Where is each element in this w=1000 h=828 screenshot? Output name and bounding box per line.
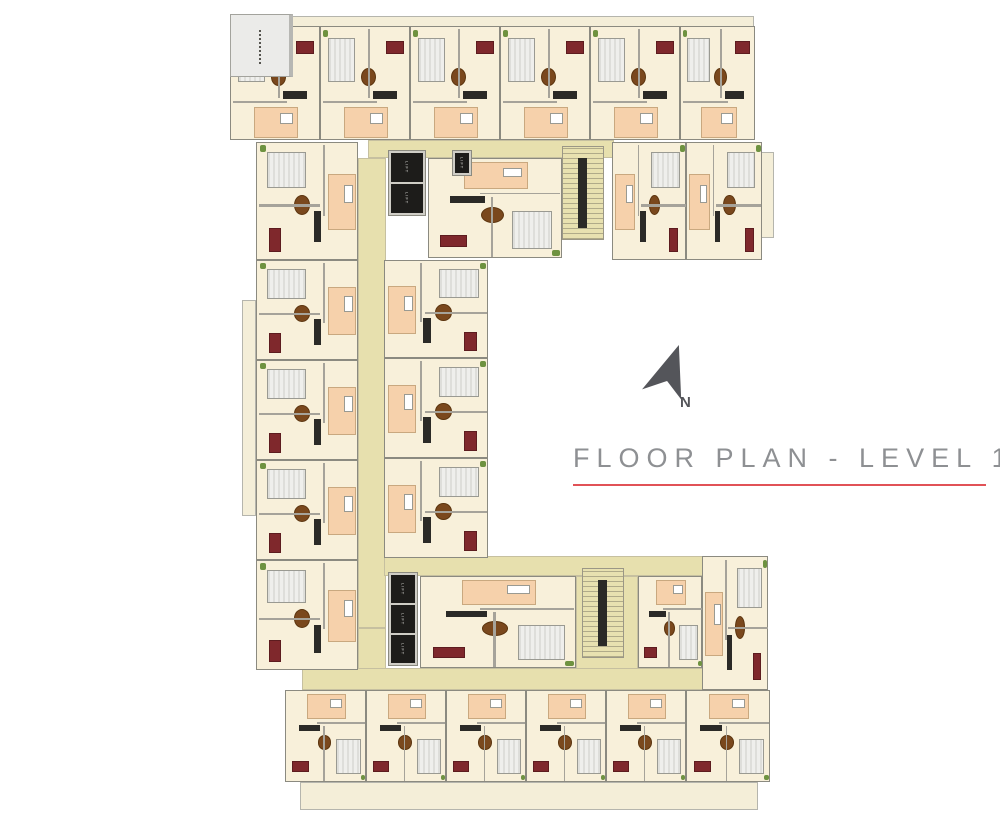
plant-icon <box>683 30 688 37</box>
wall-line <box>425 312 487 314</box>
wall-line <box>480 193 560 195</box>
plant-icon <box>552 250 560 256</box>
apartment-unit <box>446 690 526 782</box>
bed-icon <box>739 739 764 774</box>
plant-icon <box>260 563 266 570</box>
stair-rail <box>578 158 587 228</box>
wall-line <box>368 29 370 97</box>
plant-icon <box>480 361 486 367</box>
plant-icon <box>361 775 366 781</box>
apartment-unit <box>384 358 488 458</box>
bathroom-zone <box>328 487 356 535</box>
sofa-icon <box>745 228 754 252</box>
tv-unit-icon <box>620 725 641 731</box>
apartment-unit <box>384 458 488 558</box>
page-title: FLOOR PLAN - LEVEL 1 <box>573 443 986 474</box>
wall-line <box>425 511 487 513</box>
wall-line <box>420 461 422 521</box>
bed-icon <box>518 625 565 660</box>
sofa-icon <box>476 41 494 55</box>
bed-icon <box>267 369 306 399</box>
floor-plan-drawing: LIFTLIFTLIFTLIFTLIFTLIFT <box>0 0 1000 828</box>
plant-icon <box>763 560 767 568</box>
tv-unit-icon <box>283 91 306 99</box>
bed-icon <box>439 467 479 497</box>
bed-icon <box>418 38 445 81</box>
bathroom-zone <box>328 387 356 435</box>
bathroom-zone <box>434 107 477 138</box>
apartment-unit <box>366 690 446 782</box>
apartment-unit <box>500 26 590 140</box>
wall-line <box>493 612 496 667</box>
sofa-icon <box>735 41 750 55</box>
title-underline <box>573 484 986 486</box>
sink-icon <box>404 494 413 510</box>
apartment-unit <box>680 26 755 140</box>
apartment-unit <box>410 26 500 140</box>
bed-icon <box>267 570 306 603</box>
bathroom-zone <box>614 107 657 138</box>
sink-icon <box>344 185 353 203</box>
plant-icon <box>260 463 266 469</box>
wall-line <box>638 145 640 216</box>
bathroom-zone <box>709 694 749 719</box>
apartment-unit <box>420 576 576 668</box>
apartment-unit <box>285 690 366 782</box>
plant-icon <box>260 363 266 369</box>
plant-icon <box>601 775 606 781</box>
bed-icon <box>687 38 710 81</box>
wall-line <box>420 263 422 322</box>
wall-line <box>726 726 728 781</box>
bathroom-zone <box>548 694 586 719</box>
tv-unit-icon <box>423 417 430 443</box>
sink-icon <box>721 113 733 124</box>
bathroom-zone <box>656 580 687 605</box>
bathroom-zone <box>701 107 737 138</box>
sofa-icon <box>296 41 314 55</box>
bathroom-zone <box>524 107 567 138</box>
wall-line <box>259 413 320 415</box>
tv-unit-icon <box>314 419 321 445</box>
wall-line <box>728 627 768 630</box>
sink-icon <box>650 699 662 708</box>
sofa-icon <box>464 431 476 451</box>
sofa-icon <box>453 761 469 772</box>
sink-icon <box>330 699 342 708</box>
plant-icon <box>260 145 266 152</box>
sink-icon <box>700 185 707 203</box>
wall-line <box>323 145 325 216</box>
apartment-unit <box>526 690 606 782</box>
bed-icon <box>497 739 521 774</box>
sink-icon <box>344 600 353 617</box>
stair-rail <box>598 580 607 647</box>
lift-shaft: LIFT <box>391 184 423 213</box>
sofa-icon <box>269 640 281 662</box>
sofa-icon <box>753 653 761 680</box>
sofa-icon <box>269 533 281 553</box>
bed-icon <box>267 269 306 299</box>
apartment-unit <box>256 142 358 260</box>
wall-line <box>420 361 422 421</box>
apartment-unit <box>256 560 358 670</box>
terrace-strip <box>760 152 774 238</box>
wall-line <box>638 29 640 97</box>
plant-icon <box>756 145 761 152</box>
bathroom-zone <box>388 286 416 333</box>
wall-line <box>668 612 670 667</box>
tv-unit-icon <box>715 211 720 242</box>
bathroom-zone <box>328 590 356 643</box>
sofa-icon <box>386 41 404 55</box>
plant-icon <box>323 30 328 37</box>
tv-unit-icon <box>446 611 487 617</box>
sink-icon <box>640 113 654 124</box>
tv-unit-icon <box>299 725 320 731</box>
wall-line <box>323 463 325 523</box>
plant-icon <box>681 775 686 781</box>
bed-icon <box>577 739 601 774</box>
lift-shaft: LIFT <box>391 605 415 633</box>
wall-line <box>425 411 487 413</box>
apartment-unit <box>606 690 686 782</box>
wall-line <box>503 101 557 103</box>
lift-block: LIFTLIFT <box>388 150 426 216</box>
sink-icon <box>370 113 384 124</box>
apartment-unit <box>590 26 680 140</box>
sofa-icon <box>269 433 281 453</box>
wall-line <box>641 204 685 206</box>
wall-line <box>259 313 320 315</box>
wall-line <box>323 263 325 323</box>
tv-unit-icon <box>314 625 321 654</box>
wall-line <box>413 101 467 103</box>
sink-icon <box>404 394 413 410</box>
plant-icon <box>764 775 769 781</box>
sofa-icon <box>440 235 467 247</box>
tv-unit-icon <box>463 91 486 99</box>
corridor <box>358 628 386 670</box>
wall-line <box>725 560 727 640</box>
tv-unit-icon <box>314 319 321 345</box>
sofa-icon <box>694 761 711 772</box>
apartment-unit <box>256 360 358 460</box>
wall-line <box>719 722 769 724</box>
corridor <box>384 556 706 576</box>
sink-icon <box>550 113 564 124</box>
wall-line <box>317 722 366 724</box>
roof-annotation <box>259 28 261 64</box>
sink-icon <box>507 585 529 594</box>
bathroom-zone <box>689 174 710 231</box>
lift-shaft: LIFT <box>391 635 415 663</box>
sofa-icon <box>464 332 476 352</box>
north-compass: N <box>638 342 708 420</box>
bathroom-zone <box>464 162 528 189</box>
plant-icon <box>503 30 508 37</box>
bed-icon <box>679 625 698 660</box>
north-label: N <box>680 394 691 411</box>
tv-unit-icon <box>700 725 722 731</box>
lift-block: LIFTLIFTLIFT <box>388 572 418 666</box>
tv-unit-icon <box>649 611 666 617</box>
wall-line <box>713 145 715 216</box>
bathroom-zone <box>328 174 356 231</box>
bed-icon <box>417 739 441 774</box>
wall-line <box>683 101 728 103</box>
sink-icon <box>344 496 353 512</box>
bed-icon <box>657 739 681 774</box>
sofa-icon <box>613 761 629 772</box>
corridor <box>302 668 710 690</box>
wall-line <box>557 722 605 724</box>
bathroom-zone <box>615 174 635 231</box>
bed-icon <box>439 367 479 397</box>
bathroom-zone <box>628 694 666 719</box>
wall-line <box>404 726 406 781</box>
sofa-icon <box>269 228 281 252</box>
sofa-icon <box>433 647 464 658</box>
sink-icon <box>344 296 353 312</box>
tv-unit-icon <box>725 91 745 99</box>
tv-unit-icon <box>423 517 430 543</box>
bed-icon <box>651 152 679 187</box>
apartment-unit <box>384 260 488 358</box>
sink-icon <box>714 604 720 625</box>
lift-shaft: LIFT <box>391 575 415 603</box>
apartment-unit <box>686 142 762 260</box>
bathroom-zone <box>328 287 356 335</box>
sink-icon <box>410 699 422 708</box>
bed-icon <box>512 211 552 249</box>
bed-icon <box>508 38 535 81</box>
wall-line <box>720 29 722 97</box>
plant-icon <box>680 145 684 152</box>
wall-line <box>491 197 494 257</box>
apartment-unit <box>428 158 562 258</box>
apartment-unit <box>320 26 410 140</box>
bed-icon <box>267 152 306 187</box>
lift-block: LIFT <box>452 150 472 176</box>
bathroom-zone <box>307 694 346 719</box>
stairwell <box>582 568 624 658</box>
sofa-icon <box>269 333 281 353</box>
sink-icon <box>732 699 745 708</box>
wall-line <box>593 101 647 103</box>
sofa-icon <box>373 761 389 772</box>
bed-icon <box>727 152 756 187</box>
tv-unit-icon <box>450 196 485 203</box>
bathroom-zone <box>468 694 506 719</box>
wall-line <box>484 726 486 781</box>
apartment-unit <box>686 690 770 782</box>
bathroom-zone <box>344 107 387 138</box>
apartment-unit <box>638 576 702 668</box>
sink-icon <box>673 585 683 594</box>
tv-unit-icon <box>373 91 396 99</box>
wall-line <box>564 726 566 781</box>
bed-icon <box>439 269 479 298</box>
bathroom-zone <box>254 107 297 138</box>
bathroom-zone <box>388 694 426 719</box>
sofa-icon <box>669 228 678 252</box>
wall-line <box>480 608 574 610</box>
apartment-unit <box>702 556 768 690</box>
wall-line <box>637 722 685 724</box>
wall-line <box>477 722 525 724</box>
bathroom-zone <box>388 485 416 533</box>
title-block: FLOOR PLAN - LEVEL 1 <box>573 443 986 486</box>
wall-line <box>259 204 320 206</box>
north-arrow-icon <box>638 342 698 402</box>
tv-unit-icon <box>460 725 481 731</box>
sink-icon <box>344 396 353 412</box>
tv-unit-icon <box>314 519 321 545</box>
plant-icon <box>260 263 266 269</box>
wall-line <box>548 29 550 97</box>
tv-unit-icon <box>553 91 576 99</box>
wall-line <box>716 204 762 206</box>
tv-unit-icon <box>643 91 666 99</box>
wall-line <box>458 29 460 97</box>
sofa-icon <box>656 41 674 55</box>
plant-icon <box>441 775 446 781</box>
bed-icon <box>737 568 762 608</box>
plant-icon <box>480 263 486 269</box>
sofa-icon <box>566 41 584 55</box>
bed-icon <box>336 739 360 774</box>
plant-icon <box>413 30 418 37</box>
sofa-icon <box>292 761 308 772</box>
sink-icon <box>626 185 633 203</box>
tv-unit-icon <box>380 725 401 731</box>
bed-icon <box>267 469 306 499</box>
bathroom-zone <box>462 580 537 605</box>
wall-line <box>323 363 325 423</box>
sofa-icon <box>644 647 657 658</box>
corridor <box>358 158 386 628</box>
bed-icon <box>598 38 625 81</box>
plant-icon <box>521 775 526 781</box>
sink-icon <box>280 113 294 124</box>
wall-line <box>233 101 287 103</box>
sofa-icon <box>533 761 549 772</box>
sofa-icon <box>464 531 476 551</box>
roof-area <box>230 14 293 77</box>
wall-line <box>663 608 701 610</box>
wall-line <box>323 563 325 629</box>
sink-icon <box>490 699 502 708</box>
apartment-unit <box>612 142 686 260</box>
apartment-unit <box>256 260 358 360</box>
wall-line <box>323 726 325 781</box>
sink-icon <box>460 113 474 124</box>
wall-line <box>644 726 646 781</box>
bathroom-zone <box>705 592 723 656</box>
tv-unit-icon <box>540 725 561 731</box>
tv-unit-icon <box>727 635 732 670</box>
wall-line <box>397 722 445 724</box>
bed-icon <box>328 38 355 81</box>
plant-icon <box>593 30 598 37</box>
wall-line <box>259 618 320 620</box>
stairwell <box>562 146 604 240</box>
sink-icon <box>570 699 582 708</box>
plant-icon <box>565 661 574 667</box>
tv-unit-icon <box>423 318 430 343</box>
sink-icon <box>404 296 413 312</box>
wall-line <box>323 101 377 103</box>
sink-icon <box>503 168 522 178</box>
lift-shaft: LIFT <box>455 153 469 173</box>
terrace-strip <box>300 782 758 810</box>
floor-plan-page: LIFTLIFTLIFTLIFTLIFTLIFT N FLOOR PLAN - … <box>0 0 1000 828</box>
wall-line <box>259 513 320 515</box>
apartment-unit <box>256 460 358 560</box>
tv-unit-icon <box>314 211 321 242</box>
bathroom-zone <box>388 385 416 433</box>
terrace-strip <box>242 300 256 516</box>
tv-unit-icon <box>640 211 645 242</box>
lift-shaft: LIFT <box>391 153 423 182</box>
plant-icon <box>480 461 486 467</box>
